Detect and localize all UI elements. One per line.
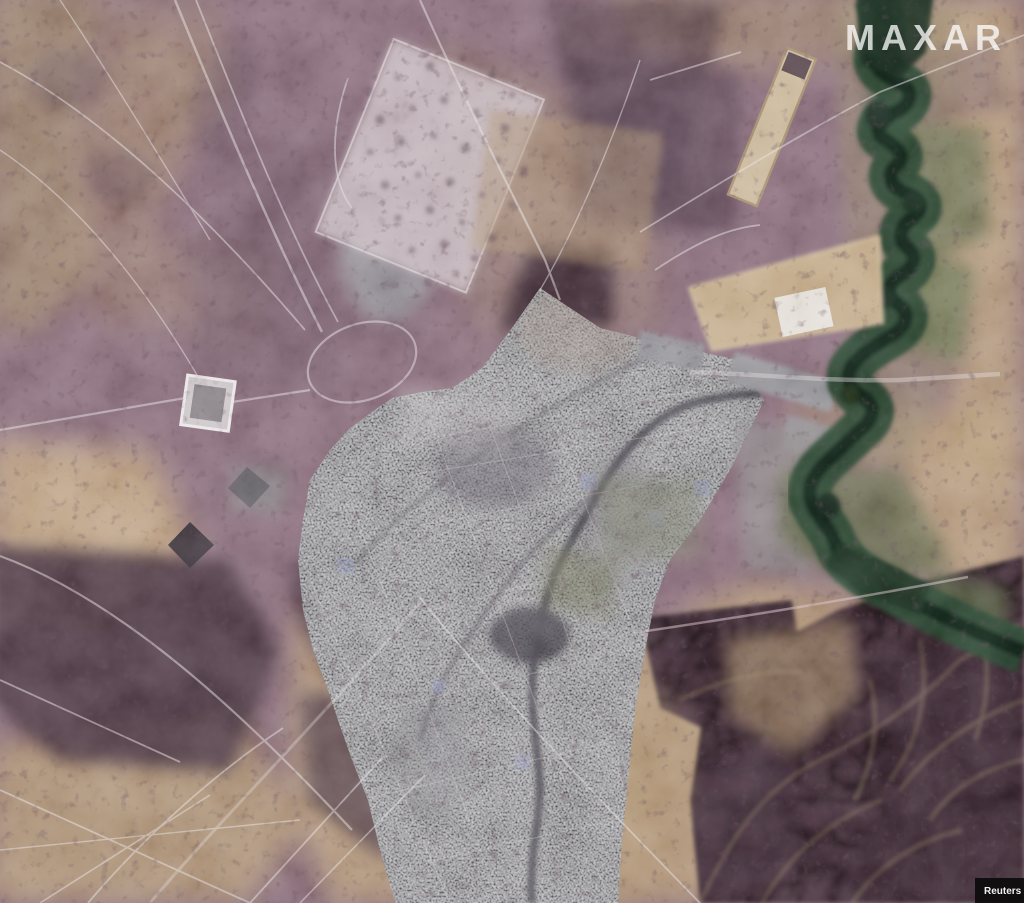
svg-text:Reuters: Reuters	[984, 886, 1022, 897]
svg-text:MAXAR: MAXAR	[845, 17, 1007, 58]
